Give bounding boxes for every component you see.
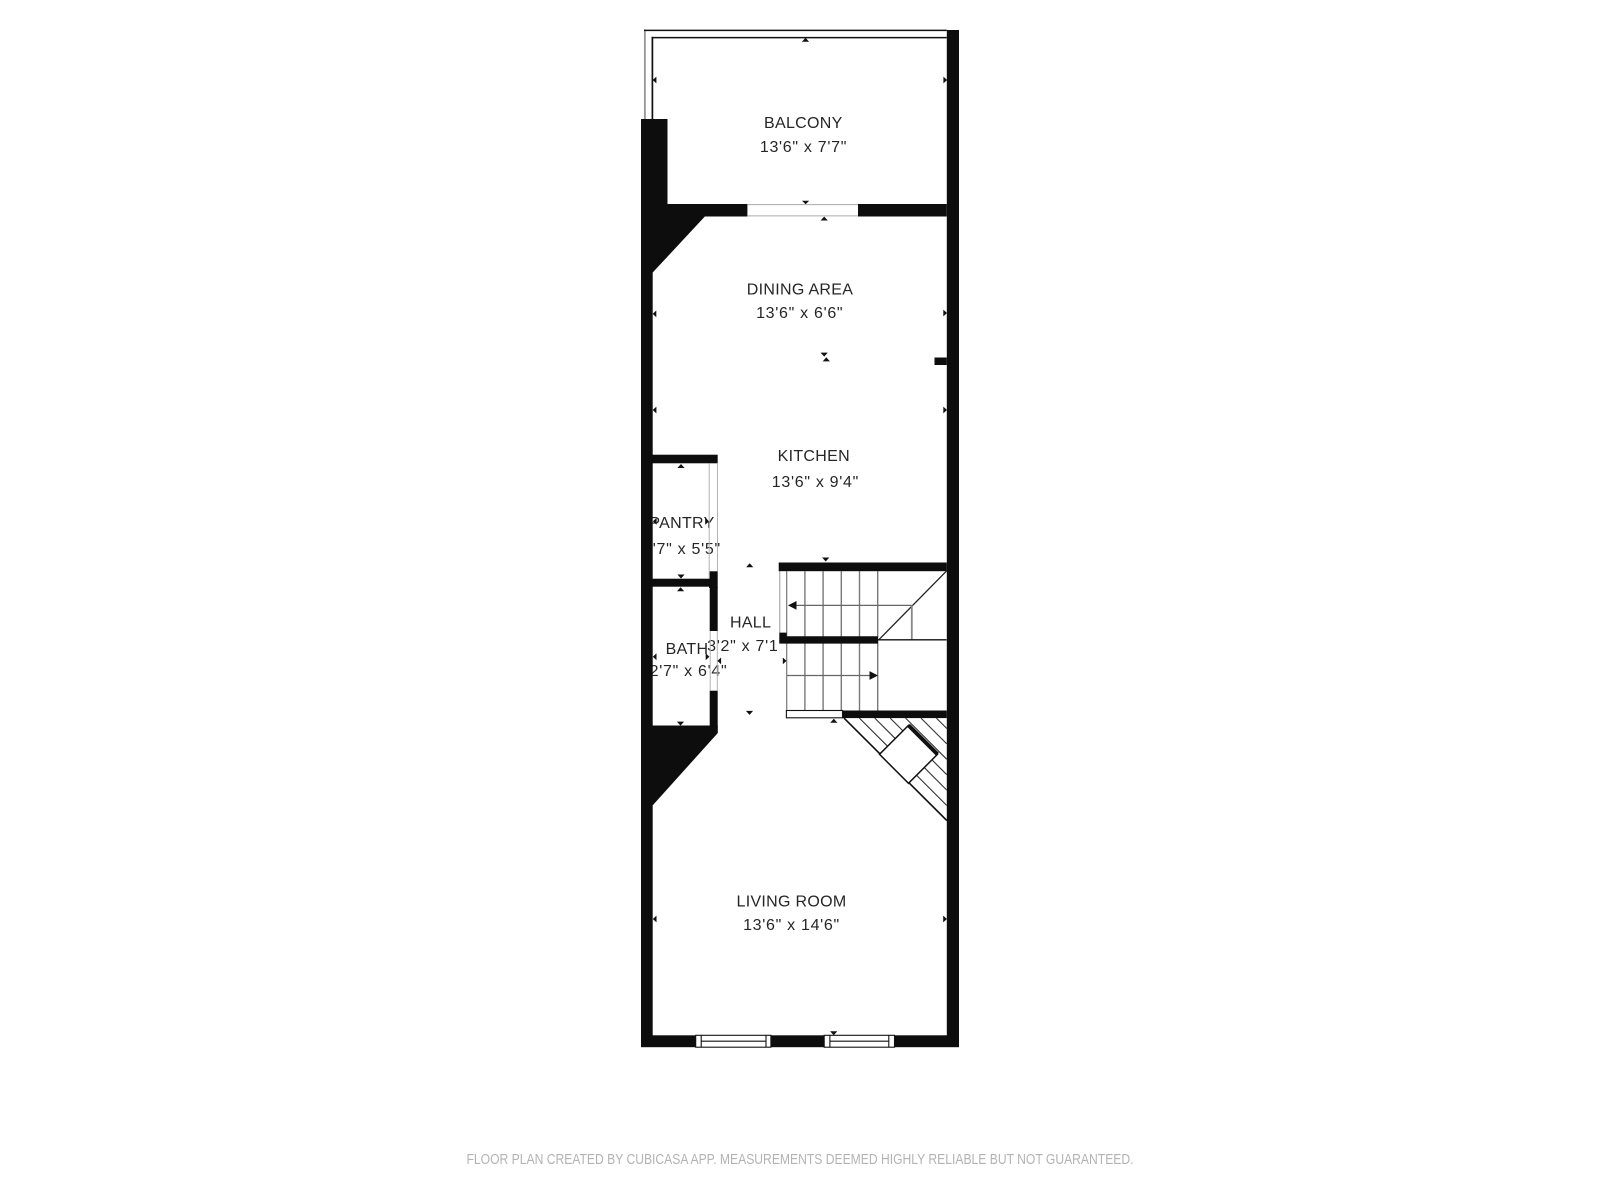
svg-text:3'2" x 7'1": 3'2" x 7'1" <box>707 638 785 655</box>
svg-text:LIVING ROOM: LIVING ROOM <box>737 893 847 910</box>
svg-text:2'7" x 6'4": 2'7" x 6'4" <box>650 663 728 680</box>
svg-text:PANTRY: PANTRY <box>649 515 714 532</box>
svg-text:FLOOR PLAN CREATED BY CUBICASA: FLOOR PLAN CREATED BY CUBICASA APP. MEAS… <box>467 1151 1134 1168</box>
svg-text:HALL: HALL <box>730 614 771 631</box>
svg-text:DINING AREA: DINING AREA <box>747 282 853 299</box>
svg-text:13'6" x 9'4": 13'6" x 9'4" <box>772 474 859 491</box>
svg-text:BALCONY: BALCONY <box>764 115 843 132</box>
svg-text:13'6" x 7'7": 13'6" x 7'7" <box>760 139 847 156</box>
svg-text:13'6" x 6'6": 13'6" x 6'6" <box>756 305 843 322</box>
svg-text:BATH: BATH <box>666 641 709 658</box>
svg-text:KITCHEN: KITCHEN <box>778 448 850 465</box>
svg-text:13'6" x 14'6": 13'6" x 14'6" <box>743 917 840 934</box>
